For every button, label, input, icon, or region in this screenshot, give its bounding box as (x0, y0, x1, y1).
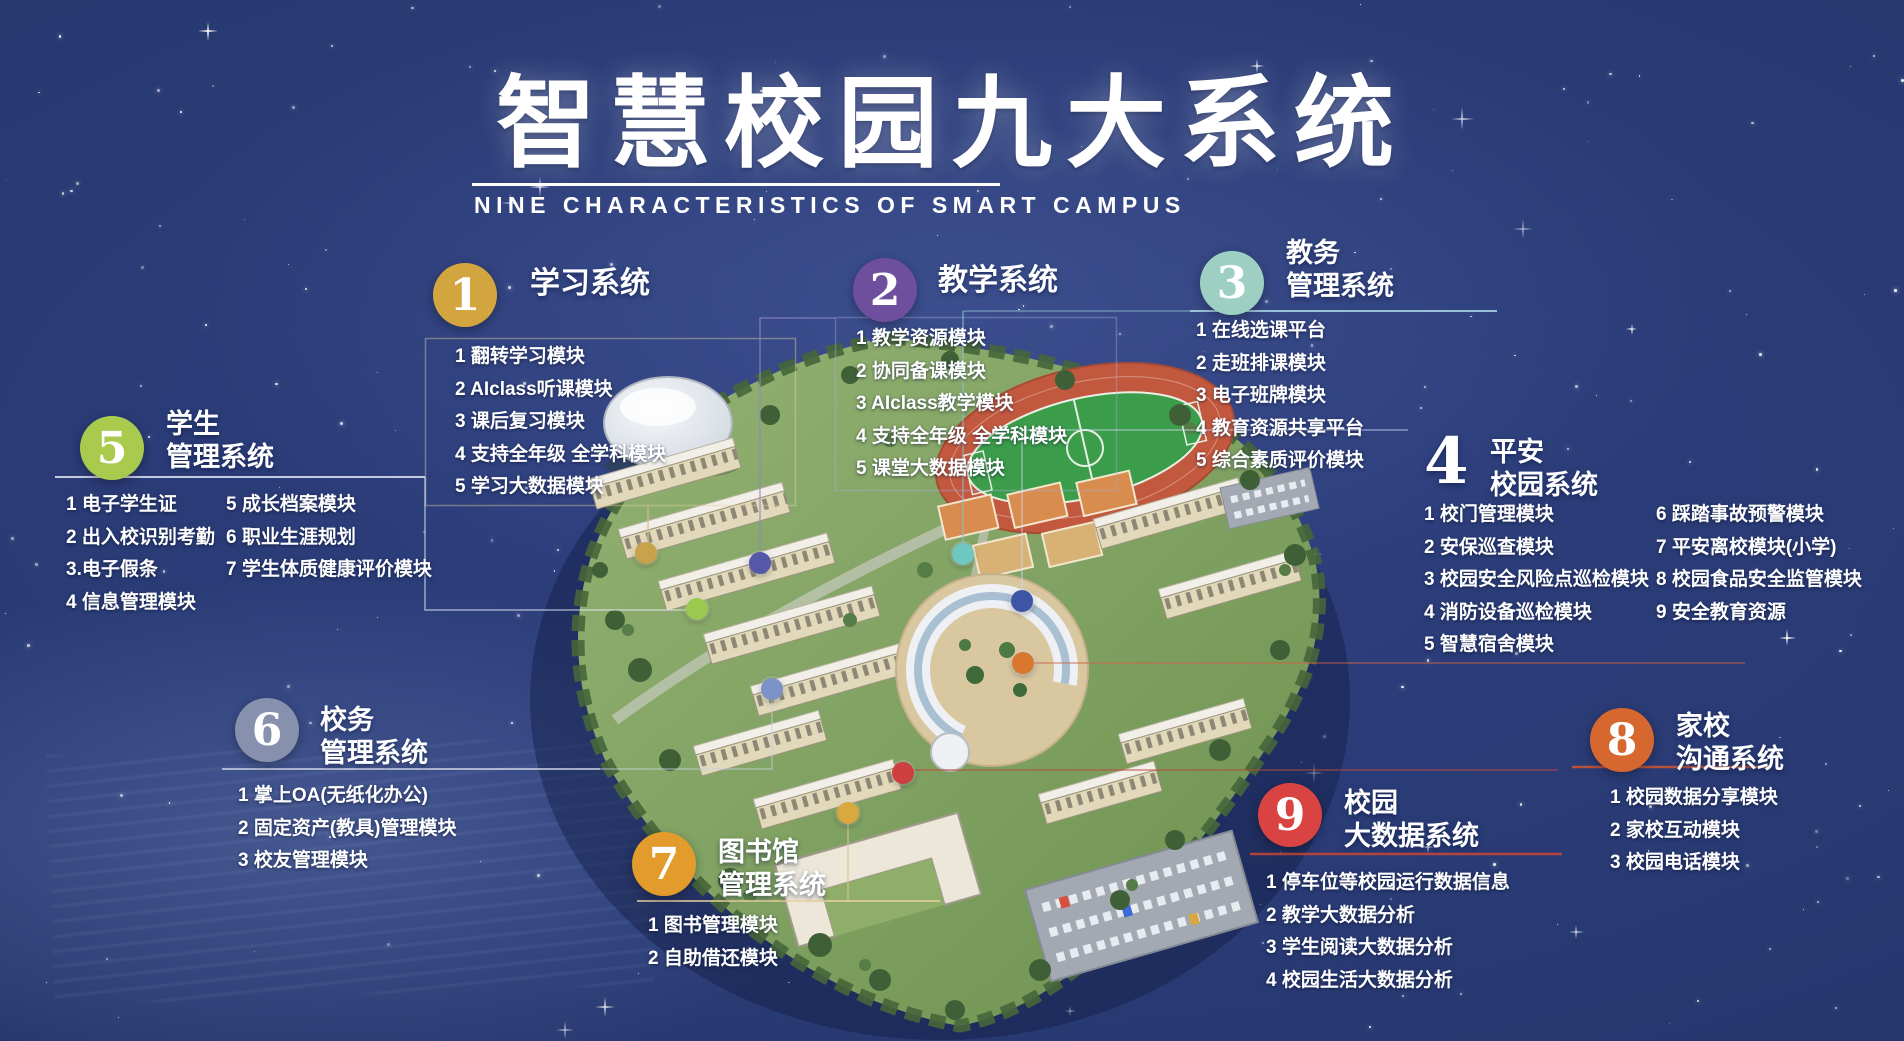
module-item: 7 学生体质健康评价模块 (226, 554, 432, 587)
system-3-number-badge: 3 (1200, 251, 1264, 315)
module-item: 1 停车位等校园运行数据信息 (1266, 867, 1510, 900)
system-number: 6 (252, 705, 283, 756)
module-item: 3 校园安全风险点巡检模块 (1424, 564, 1649, 597)
system-6-number-badge: 6 (235, 698, 299, 762)
module-item: 5 综合素质评价模块 (1196, 445, 1364, 478)
map-marker-system-2 (749, 552, 771, 574)
module-item: 3 AIclass教学模块 (856, 388, 1067, 421)
map-marker-system-9 (892, 762, 914, 784)
system-4-modules-right: 6 踩踏事故预警模块 7 平安离校模块(小学) 8 校园食品安全监管模块 9 安… (1656, 499, 1862, 629)
module-item: 1 校门管理模块 (1424, 499, 1649, 532)
system-6-modules: 1 掌上OA(无纸化办公) 2 固定资产(教具)管理模块 3 校友管理模块 (238, 780, 457, 878)
module-item: 3 校友管理模块 (238, 845, 457, 878)
module-item: 2 自助借还模块 (648, 943, 778, 976)
module-item: 1 图书管理模块 (648, 910, 778, 943)
system-number: 7 (649, 839, 680, 890)
system-8-modules: 1 校园数据分享模块 2 家校互动模块 3 校园电话模块 (1610, 782, 1778, 880)
system-2-modules: 1 教学资源模块 2 协同备课模块 3 AIclass教学模块 4 支持全年级 … (856, 323, 1067, 486)
module-item: 2 AIclass听课模块 (455, 374, 666, 407)
map-marker-system-6 (761, 678, 783, 700)
module-item: 4 校园生活大数据分析 (1266, 965, 1510, 998)
module-item: 8 校园食品安全监管模块 (1656, 564, 1862, 597)
system-4-modules-left: 1 校门管理模块 2 安保巡查模块 3 校园安全风险点巡检模块 4 消防设备巡检… (1424, 499, 1649, 662)
system-5-modules-right: 5 成长档案模块 6 职业生涯规划 7 学生体质健康评价模块 (226, 489, 432, 587)
module-item: 3 校园电话模块 (1610, 847, 1778, 880)
system-1-modules: 1 翻转学习模块 2 AIclass听课模块 3 课后复习模块 4 支持全年级 … (455, 341, 666, 504)
module-item: 4 信息管理模块 (66, 587, 215, 620)
module-item: 1 翻转学习模块 (455, 341, 666, 374)
system-6-title: 校务管理系统 (320, 704, 428, 770)
system-3-title: 教务管理系统 (1286, 237, 1394, 303)
system-8-number-badge: 8 (1590, 708, 1654, 772)
module-item: 5 智慧宿舍模块 (1424, 629, 1649, 662)
system-4-title: 平安校园系统 (1490, 436, 1598, 502)
module-item: 5 课堂大数据模块 (856, 453, 1067, 486)
map-marker-system-1 (635, 542, 657, 564)
system-number: 2 (870, 265, 901, 316)
module-item: 5 成长档案模块 (226, 489, 432, 522)
system-3-modules: 1 在线选课平台 2 走班排课模块 3 电子班牌模块 4 教育资源共享平台 5 … (1196, 315, 1364, 478)
module-item: 4 教育资源共享平台 (1196, 413, 1364, 446)
system-4-number: 4 (1424, 430, 1469, 494)
map-marker-system-3 (952, 543, 974, 565)
module-item: 7 平安离校模块(小学) (1656, 532, 1862, 565)
module-item: 4 支持全年级 全学科模块 (856, 421, 1067, 454)
module-item: 2 固定资产(教具)管理模块 (238, 813, 457, 846)
module-item: 1 校园数据分享模块 (1610, 782, 1778, 815)
system-7-modules: 1 图书管理模块 2 自助借还模块 (648, 910, 778, 975)
system-9-title: 校园大数据系统 (1344, 787, 1479, 853)
module-item: 6 踩踏事故预警模块 (1656, 499, 1862, 532)
system-5-number-badge: 5 (80, 416, 144, 480)
title-underline (472, 183, 1000, 186)
system-number: 3 (1217, 258, 1248, 309)
system-2-title: 教学系统 (938, 263, 1058, 299)
map-marker-system-8 (1012, 652, 1034, 674)
system-8-title: 家校沟通系统 (1676, 710, 1784, 776)
system-2-number-badge: 2 (853, 258, 917, 322)
system-1-number-badge: 1 (433, 263, 497, 327)
poster: 智慧校园九大系统 NINE CHARACTERISTICS OF SMART C… (0, 0, 1904, 1041)
system-7-title: 图书馆管理系统 (718, 836, 826, 902)
module-item: 2 走班排课模块 (1196, 348, 1364, 381)
module-item: 4 支持全年级 全学科模块 (455, 439, 666, 472)
map-marker-system-5 (686, 598, 708, 620)
module-item: 4 消防设备巡检模块 (1424, 597, 1649, 630)
module-item: 6 职业生涯规划 (226, 522, 432, 555)
system-number: 9 (1275, 790, 1306, 841)
page-title: 智慧校园九大系统 (0, 42, 1904, 187)
map-marker-system-4 (1011, 590, 1033, 612)
module-item: 5 学习大数据模块 (455, 471, 666, 504)
map-marker-system-7 (837, 802, 859, 824)
system-1-title: 学习系统 (530, 266, 650, 302)
system-7-number-badge: 7 (632, 832, 696, 896)
module-item: 1 电子学生证 (66, 489, 215, 522)
module-item: 3 课后复习模块 (455, 406, 666, 439)
module-item: 2 家校互动模块 (1610, 815, 1778, 848)
system-number: 8 (1607, 715, 1638, 766)
module-item: 1 掌上OA(无纸化办公) (238, 780, 457, 813)
module-item: 2 协同备课模块 (856, 356, 1067, 389)
system-number: 5 (97, 423, 128, 474)
system-number: 1 (450, 270, 481, 321)
system-5-modules-left: 1 电子学生证 2 出入校识别考勤 3.电子假条 4 信息管理模块 (66, 489, 215, 619)
module-item: 1 教学资源模块 (856, 323, 1067, 356)
module-item: 3 电子班牌模块 (1196, 380, 1364, 413)
module-item: 9 安全教育资源 (1656, 597, 1862, 630)
module-item: 3.电子假条 (66, 554, 215, 587)
module-item: 3 学生阅读大数据分析 (1266, 932, 1510, 965)
module-item: 2 安保巡查模块 (1424, 532, 1649, 565)
module-item: 1 在线选课平台 (1196, 315, 1364, 348)
page-subtitle: NINE CHARACTERISTICS OF SMART CAMPUS (474, 192, 1186, 219)
module-item: 2 出入校识别考勤 (66, 522, 215, 555)
system-5-title: 学生管理系统 (166, 408, 274, 474)
system-9-modules: 1 停车位等校园运行数据信息 2 教学大数据分析 3 学生阅读大数据分析 4 校… (1266, 867, 1510, 997)
module-item: 2 教学大数据分析 (1266, 900, 1510, 933)
system-9-number-badge: 9 (1258, 783, 1322, 847)
